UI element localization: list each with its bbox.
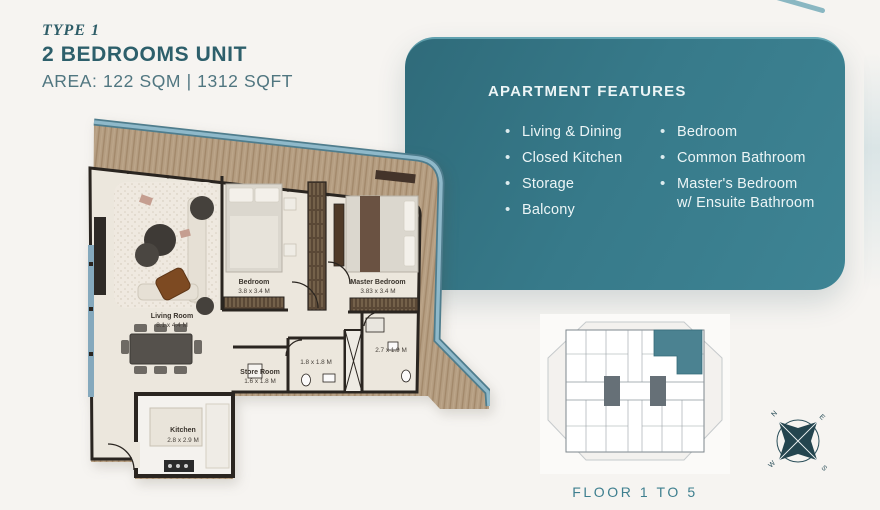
- window-mullion: [89, 352, 93, 356]
- feature-item: Living & Dining: [505, 124, 638, 140]
- dining-table: [130, 334, 192, 364]
- compass-rose-icon: N E W S: [760, 402, 836, 478]
- feature-label: Balcony: [522, 202, 575, 218]
- features-columns: Living & Dining Closed Kitchen Storage B…: [505, 124, 845, 228]
- master-bedroom-label: Master Bedroom: [350, 279, 405, 286]
- shower: [366, 318, 384, 332]
- kitchen-label: Kitchen: [170, 427, 196, 434]
- sink: [323, 374, 335, 382]
- feature-item: Common Bathroom: [660, 150, 815, 166]
- duvet: [230, 216, 278, 268]
- pillow: [255, 188, 279, 202]
- toilet: [302, 374, 311, 386]
- floor-plan: Living Room 8.1 x 4.4 M Bedroom 3.8 x 3.…: [88, 112, 490, 484]
- store-room-dims: 1.6 x 1.8 M: [244, 378, 276, 385]
- dresser: [334, 204, 344, 266]
- master-bedroom-dims: 3.83 x 3.4 M: [360, 288, 395, 295]
- feature-item: Bedroom: [660, 124, 815, 140]
- compass-w: W: [767, 460, 777, 470]
- kitchen-counter: [206, 404, 229, 468]
- feature-label: Storage: [522, 176, 574, 192]
- brochure-page: TYPE 1 2 BEDROOMS UNIT AREA: 122 SQM | 1…: [0, 0, 880, 510]
- compass-e: E: [818, 413, 826, 421]
- nightstand: [284, 244, 296, 256]
- bed-throw: [360, 196, 380, 272]
- pillow: [404, 201, 415, 231]
- compass-s: S: [820, 464, 828, 472]
- key-plan: [540, 314, 730, 482]
- left-window-strip: [88, 245, 94, 397]
- master-bath-dims: 2.7 x 1.9 M: [375, 347, 407, 354]
- type-label: TYPE 1: [42, 22, 293, 40]
- window-mullion: [89, 262, 93, 266]
- feature-label: Living & Dining: [522, 124, 622, 140]
- floor-range-caption: FLOOR 1 TO 5: [540, 484, 730, 500]
- core-right: [650, 376, 666, 406]
- window-mullion: [89, 307, 93, 311]
- feature-label: Common Bathroom: [677, 150, 806, 166]
- area-label: AREA: 122 SQM | 1312 SQFT: [42, 71, 293, 92]
- wardrobe: [350, 298, 418, 312]
- feature-label: Closed Kitchen: [522, 150, 622, 166]
- living-room-label: Living Room: [151, 313, 193, 320]
- features-list-left: Living & Dining Closed Kitchen Storage B…: [505, 124, 638, 228]
- bedroom-dims: 3.8 x 3.4 M: [238, 288, 270, 295]
- feature-label: Bedroom: [677, 124, 737, 140]
- stove-burners: [168, 464, 188, 468]
- nightstand: [284, 198, 296, 210]
- core-left: [604, 376, 620, 406]
- feature-item: Closed Kitchen: [505, 150, 638, 166]
- feature-item: Storage: [505, 176, 638, 192]
- pillow: [229, 188, 253, 202]
- unit-title: 2 BEDROOMS UNIT: [42, 43, 293, 67]
- living-room-dims: 8.1 x 4.4 M: [156, 322, 188, 329]
- coffee-table: [135, 243, 159, 267]
- decor-right-wash: [864, 52, 880, 292]
- feature-label: Master's Bedroom: [677, 176, 797, 192]
- wardrobe: [224, 297, 284, 310]
- store-room-label: Store Room: [240, 369, 280, 376]
- features-title: APARTMENT FEATURES: [405, 39, 845, 100]
- features-list-right: Bedroom Common Bathroom Master's Bedroom…: [660, 124, 815, 228]
- tv-console: [94, 217, 106, 295]
- bedroom-label: Bedroom: [239, 279, 270, 286]
- pillow: [404, 236, 415, 266]
- side-table: [196, 297, 214, 315]
- feature-label-continuation: w/ Ensuite Bathroom: [677, 195, 815, 211]
- feature-item: Master's Bedroom w/ Ensuite Bathroom: [660, 176, 815, 211]
- side-table: [190, 196, 214, 220]
- toilet: [402, 370, 411, 382]
- decor-diagonal-stripe: [770, 0, 825, 14]
- compass-n: N: [770, 410, 779, 419]
- feature-item: Balcony: [505, 202, 638, 218]
- title-block: TYPE 1 2 BEDROOMS UNIT AREA: 122 SQM | 1…: [42, 22, 293, 92]
- compass-star-split: [779, 422, 817, 460]
- bathroom-dims: 1.8 x 1.8 M: [300, 359, 332, 366]
- kitchen-dims: 2.8 x 2.9 M: [167, 437, 199, 444]
